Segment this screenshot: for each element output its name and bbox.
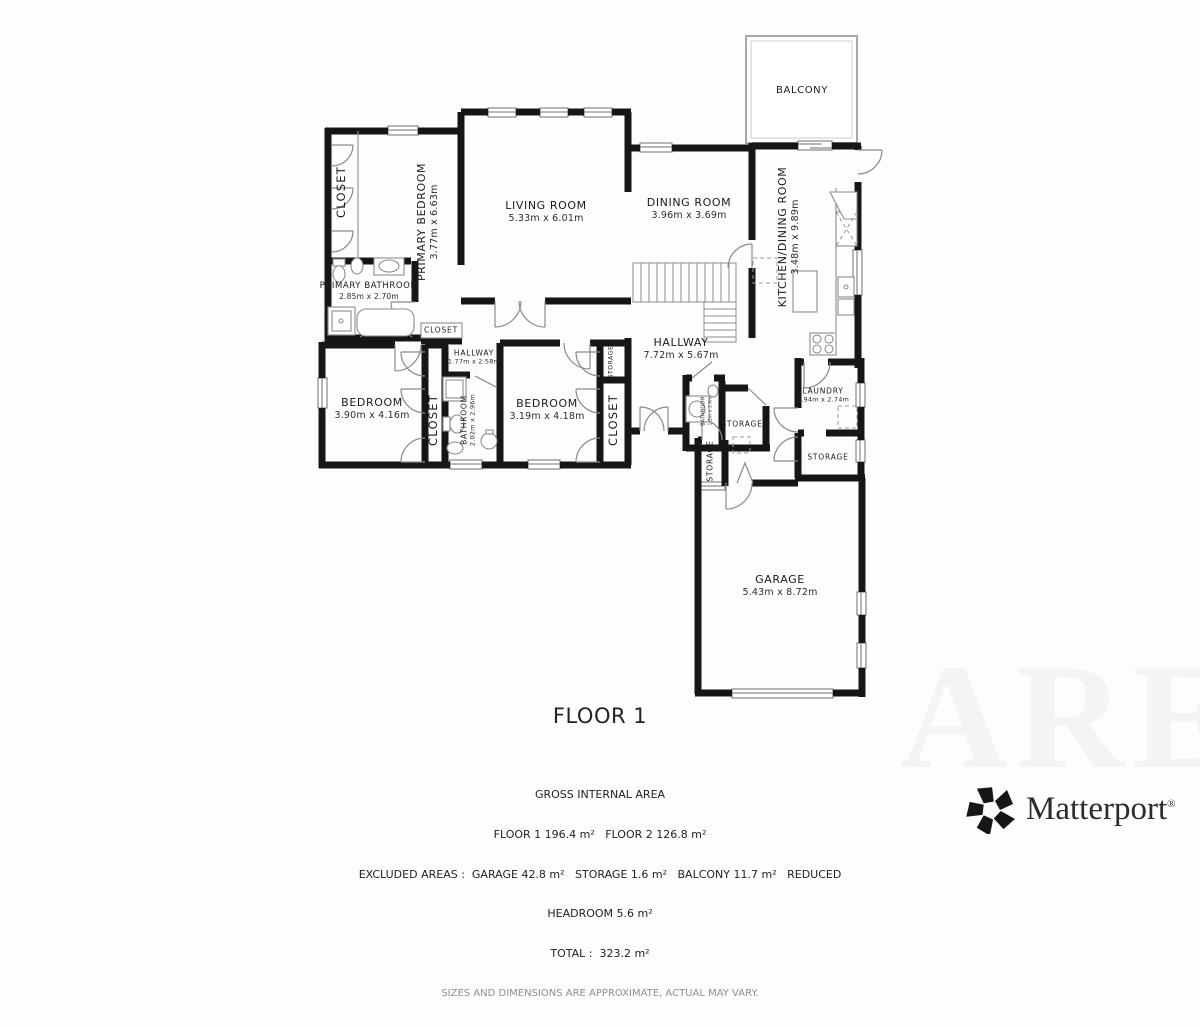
room-label-storage: STORAGE (705, 440, 714, 481)
room-dimensions: 5.33m x 6.01m (505, 213, 586, 225)
floor-title: FLOOR 1 (553, 704, 647, 728)
matterport-wordmark: Matterport® (1026, 791, 1175, 828)
room-name: DINING ROOM (647, 196, 732, 210)
area-summary: GROSS INTERNAL AREA FLOOR 1 196.4 m² FLO… (150, 762, 1050, 1027)
room-label-closet: CLOSET (426, 394, 440, 446)
room-label-storage: STORAGE (807, 452, 848, 461)
room-label-dining-room: DINING ROOM3.96m x 3.69m (647, 196, 732, 222)
room-label-laundry: LAUNDRY1.94m x 2.74m (797, 386, 849, 404)
room-label-closet: CLOSET (334, 166, 348, 218)
room-dimensions: 2.02m x 2.96m (469, 394, 477, 446)
room-dimensions: 7.72m x 5.67m (643, 350, 718, 362)
summary-line-headroom: HEADROOM 5.6 m² (150, 907, 1050, 920)
room-name: HALLWAY (643, 336, 718, 350)
room-dimensions: 3.90m x 4.16m (334, 410, 409, 422)
room-label-hallway: HALLWAY1.77m x 2.58m (448, 348, 500, 366)
room-label-living-room: LIVING ROOM5.33m x 6.01m (505, 199, 586, 225)
room-label-storage: STORAGE (721, 419, 762, 428)
room-label-storage: STORAGE (607, 346, 615, 379)
room-name: STORAGE (721, 419, 762, 428)
room-dimensions: 1.2m x 1.4m (707, 396, 712, 425)
summary-line-excluded: EXCLUDED AREAS : GARAGE 42.8 m² STORAGE … (150, 868, 1050, 881)
room-name: PRIMARY BEDROOM (415, 163, 429, 281)
room-label-closet: CLOSET (606, 394, 620, 446)
registered-mark: ® (1167, 798, 1175, 810)
room-name: BEDROOM (509, 397, 584, 411)
room-label-closet: CLOSET (424, 325, 458, 334)
room-dimensions: 2.85m x 2.70m (320, 292, 419, 301)
matterport-logo: Matterport® (966, 784, 1175, 834)
room-name: LIVING ROOM (505, 199, 586, 213)
room-label-bedroom: BEDROOM3.90m x 4.16m (334, 396, 409, 422)
summary-line-total: TOTAL : 323.2 m² (150, 947, 1050, 960)
matterport-pinwheel-icon (966, 784, 1016, 834)
room-dimensions: 3.19m x 4.18m (509, 411, 584, 423)
room-name: HALLWAY (448, 348, 500, 357)
room-name: KITCHEN/DINING ROOM (776, 167, 790, 308)
room-name: BALCONY (776, 85, 828, 98)
room-name: GARAGE (742, 573, 817, 587)
room-label-bedroom: BEDROOM3.19m x 4.18m (509, 397, 584, 423)
room-name: CLOSET (606, 394, 620, 446)
room-name: BATHROOM (459, 394, 468, 446)
floorplan-page: ARE (0, 0, 1200, 848)
room-name: CLOSET (334, 166, 348, 218)
room-name: BEDROOM (334, 396, 409, 410)
room-label-bathroom: BATHROOM2.02m x 2.96m (459, 394, 477, 446)
summary-line-gross: GROSS INTERNAL AREA (150, 788, 1050, 801)
room-dimensions: 1.94m x 2.74m (797, 396, 849, 404)
room-name: STORAGE (807, 452, 848, 461)
room-name: CLOSET (426, 394, 440, 446)
room-dimensions: 3.77m x 6.63m (429, 163, 441, 281)
room-dimensions: 3.96m x 3.69m (647, 210, 732, 222)
room-label-bathroom: BATHROOM1.2m x 1.4m (701, 396, 712, 425)
room-label-garage: GARAGE5.43m x 8.72m (742, 573, 817, 599)
room-label-hallway: HALLWAY7.72m x 5.67m (643, 336, 718, 362)
room-name: LAUNDRY (797, 386, 849, 395)
room-name: CLOSET (424, 325, 458, 334)
room-dimensions: 1.77m x 2.58m (448, 358, 500, 366)
room-label-balcony: BALCONY (776, 85, 828, 98)
room-label-primary-bedroom: PRIMARY BEDROOM3.77m x 6.63m (415, 163, 441, 281)
room-dimensions: 5.43m x 8.72m (742, 587, 817, 599)
room-name: STORAGE (607, 346, 615, 379)
room-name: PRIMARY BATHROOM (320, 281, 419, 292)
summary-line-floors: FLOOR 1 196.4 m² FLOOR 2 126.8 m² (150, 828, 1050, 841)
room-dimensions: 3.48m x 9.89m (790, 167, 802, 308)
room-name: STORAGE (705, 440, 714, 481)
room-label-primary-bathroom: PRIMARY BATHROOM2.85m x 2.70m (320, 281, 419, 301)
disclaimer: SIZES AND DIMENSIONS ARE APPROXIMATE, AC… (150, 988, 1050, 1000)
room-label-kitchen-dining-room: KITCHEN/DINING ROOM3.48m x 9.89m (776, 167, 802, 308)
